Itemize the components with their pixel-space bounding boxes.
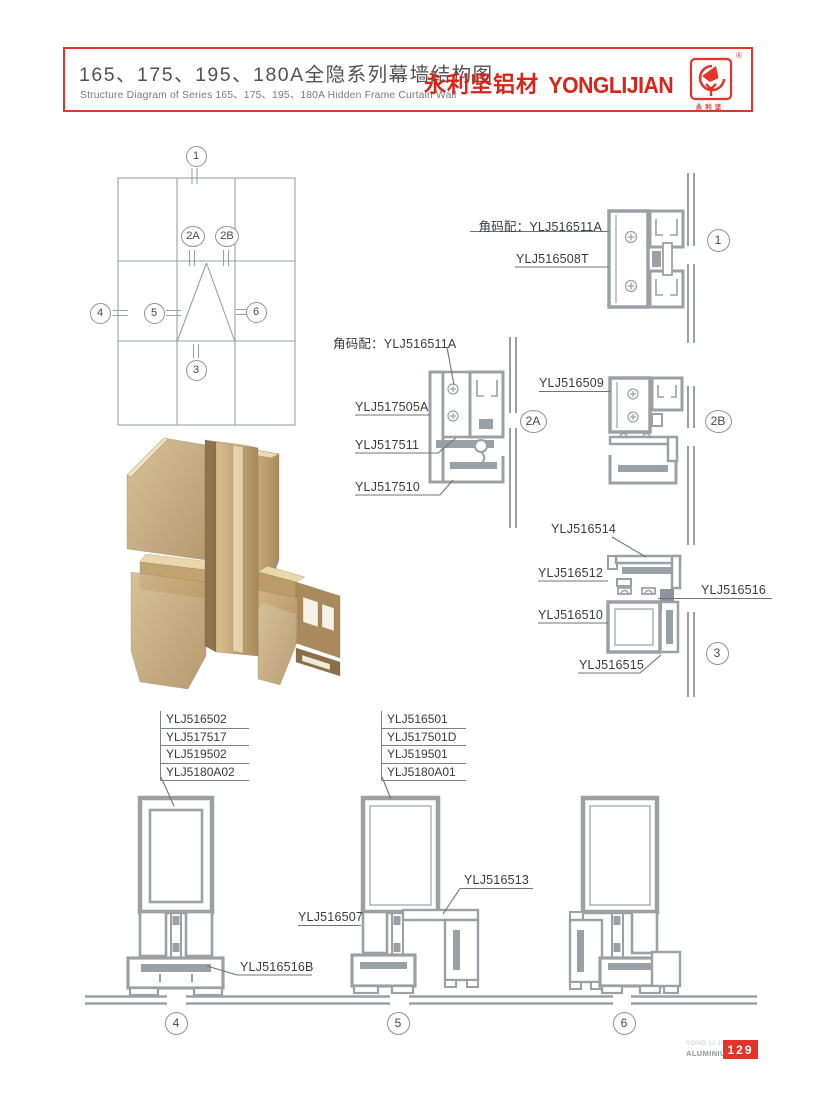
callout-d3-part1: YLJ516514 bbox=[551, 522, 616, 536]
callout-d5-part1: YLJ516507 bbox=[298, 910, 363, 924]
detail-1-drawing bbox=[609, 211, 683, 307]
brand-name-cn: 永利坚铝材 bbox=[424, 72, 539, 97]
detail-2a-drawing bbox=[430, 372, 503, 482]
detail-marker-3: 3 bbox=[706, 642, 729, 665]
part-list-item: YLJ517517 bbox=[161, 729, 249, 747]
brand-wordmark: 永利坚铝材 YONGLIJIAN bbox=[424, 67, 679, 99]
callout-d2a-part3: YLJ517510 bbox=[355, 480, 420, 494]
elevation-diagram bbox=[113, 168, 295, 425]
technical-line-art bbox=[0, 0, 817, 1101]
elevation-marker-2a: 2A bbox=[181, 226, 205, 247]
product-3d-render bbox=[127, 438, 340, 689]
part-list-item: YLJ516502 bbox=[161, 711, 249, 729]
callout-d1-corner-code: 角码配：YLJ516511A bbox=[462, 216, 602, 235]
callout-d2a-part2: YLJ517511 bbox=[355, 438, 419, 452]
detail-marker-2a: 2A bbox=[520, 410, 547, 433]
elevation-marker-2b: 2B bbox=[215, 226, 239, 247]
elevation-marker-5: 5 bbox=[144, 303, 165, 324]
brand-logo: ® 永利坚 bbox=[685, 51, 741, 111]
brand-name-en: YONGLIJIAN bbox=[549, 72, 674, 99]
callout-d3-part3: YLJ516516 bbox=[701, 583, 766, 597]
page-number-badge: 129 bbox=[723, 1040, 758, 1059]
callout-d3-part5: YLJ516515 bbox=[579, 658, 644, 672]
detail-5-part-list: YLJ516501 YLJ517501D YLJ519501 YLJ5180A0… bbox=[381, 711, 466, 781]
catalog-page: 165、175、195、180A全隐系列幕墙结构图 Structure Diag… bbox=[0, 0, 817, 1101]
callout-d3-part4: YLJ516510 bbox=[538, 608, 603, 622]
detail-4-drawing bbox=[128, 798, 223, 995]
detail-marker-2b: 2B bbox=[705, 410, 732, 433]
detail-marker-5: 5 bbox=[387, 1012, 410, 1035]
detail-6-drawing bbox=[570, 798, 680, 993]
callout-d2a-corner-code: 角码配：YLJ516511A bbox=[333, 333, 456, 352]
header: 165、175、195、180A全隐系列幕墙结构图 Structure Diag… bbox=[63, 47, 753, 112]
brand-logo-caption: 永利坚 bbox=[685, 101, 735, 111]
elevation-marker-4: 4 bbox=[90, 303, 111, 324]
part-list-item: YLJ519502 bbox=[161, 746, 249, 764]
elevation-marker-1: 1 bbox=[186, 146, 207, 167]
part-list-item: YLJ5180A02 bbox=[161, 764, 249, 782]
elevation-marker-6: 6 bbox=[246, 302, 267, 323]
detail-3-drawing bbox=[608, 556, 680, 652]
callout-d2a-part1: YLJ517505A bbox=[355, 400, 429, 414]
part-list-item: YLJ519501 bbox=[382, 746, 466, 764]
part-list-item: YLJ516501 bbox=[382, 711, 466, 729]
part-list-item: YLJ5180A01 bbox=[382, 764, 466, 782]
callout-d2b-part1: YLJ516509 bbox=[539, 376, 604, 390]
ground-line bbox=[85, 997, 757, 1004]
elevation-marker-3: 3 bbox=[186, 360, 207, 381]
page-subtitle: Structure Diagram of Series 165、175、195、… bbox=[80, 86, 456, 101]
callout-d3-part2: YLJ516512 bbox=[538, 566, 603, 580]
callout-d4-part: YLJ516516B bbox=[240, 960, 314, 974]
detail-5-drawing bbox=[352, 798, 478, 993]
detail-marker-4: 4 bbox=[165, 1012, 188, 1035]
callout-d5-part2: YLJ516513 bbox=[464, 873, 529, 887]
detail-marker-6: 6 bbox=[613, 1012, 636, 1035]
detail-2b-drawing bbox=[610, 378, 682, 483]
detail-marker-1: 1 bbox=[707, 229, 730, 252]
registered-mark: ® bbox=[736, 51, 742, 60]
detail-4-part-list: YLJ516502 YLJ517517 YLJ519502 YLJ5180A02 bbox=[160, 711, 249, 781]
part-list-item: YLJ517501D bbox=[382, 729, 466, 747]
callout-d1-part: YLJ516508T bbox=[516, 252, 589, 266]
